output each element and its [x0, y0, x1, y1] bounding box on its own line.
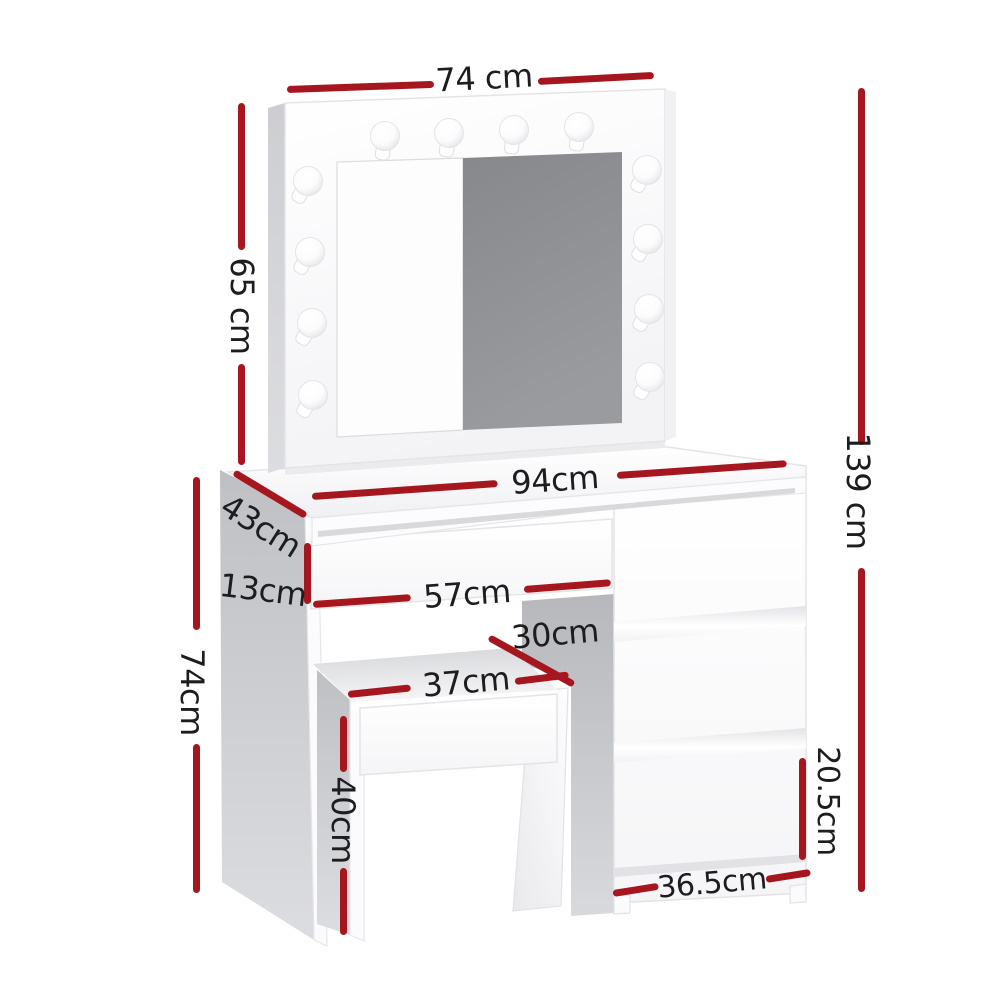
dim-label-stool-height: 40cm [327, 776, 359, 863]
dim-label-stool-depth: 30cm [510, 614, 600, 654]
dim-label-drawer-height: 13cm [218, 569, 309, 611]
drawer-unit-foot-left [614, 895, 630, 914]
dim-line-20-5cm [799, 758, 806, 860]
dim-label-mirror-height: 65 cm [226, 257, 258, 354]
dim-label-total-height: 139 cm [842, 432, 874, 549]
dim-label-knee-space-width: 57cm [422, 575, 512, 613]
mirror-frame-side-right [665, 89, 676, 441]
drawer-unit-foot-right [790, 884, 806, 903]
dim-line-74cm-left-lower [193, 744, 200, 893]
dim-line-65cm-lower [238, 364, 245, 465]
mirror-frame-side-left [268, 103, 285, 473]
dimension-diagram: 74 cm 65 cm 139 cm 94cm 43cm 13cm 57cm 3… [0, 0, 1000, 1000]
dim-label-mirror-width: 74 cm [435, 59, 534, 96]
dim-line-74cm-left-upper [193, 477, 200, 630]
dim-label-table-width: 94cm [510, 461, 600, 499]
mirror-glass-left [337, 158, 463, 437]
dim-line-65cm-upper [238, 103, 245, 250]
mirror-glass-right [463, 152, 622, 430]
dim-label-bottom-drawer-height: 20.5cm [812, 746, 842, 856]
dim-label-stool-width: 37cm [421, 662, 511, 702]
dim-line-40cm-upper [340, 716, 347, 772]
dim-label-table-height: 74cm [176, 648, 208, 735]
dim-line-139cm-lower [858, 568, 865, 892]
drawer-unit-front [614, 479, 806, 903]
dim-line-139cm-upper [858, 88, 865, 445]
stool-box [360, 694, 557, 775]
dim-line-40cm-lower [340, 868, 347, 935]
